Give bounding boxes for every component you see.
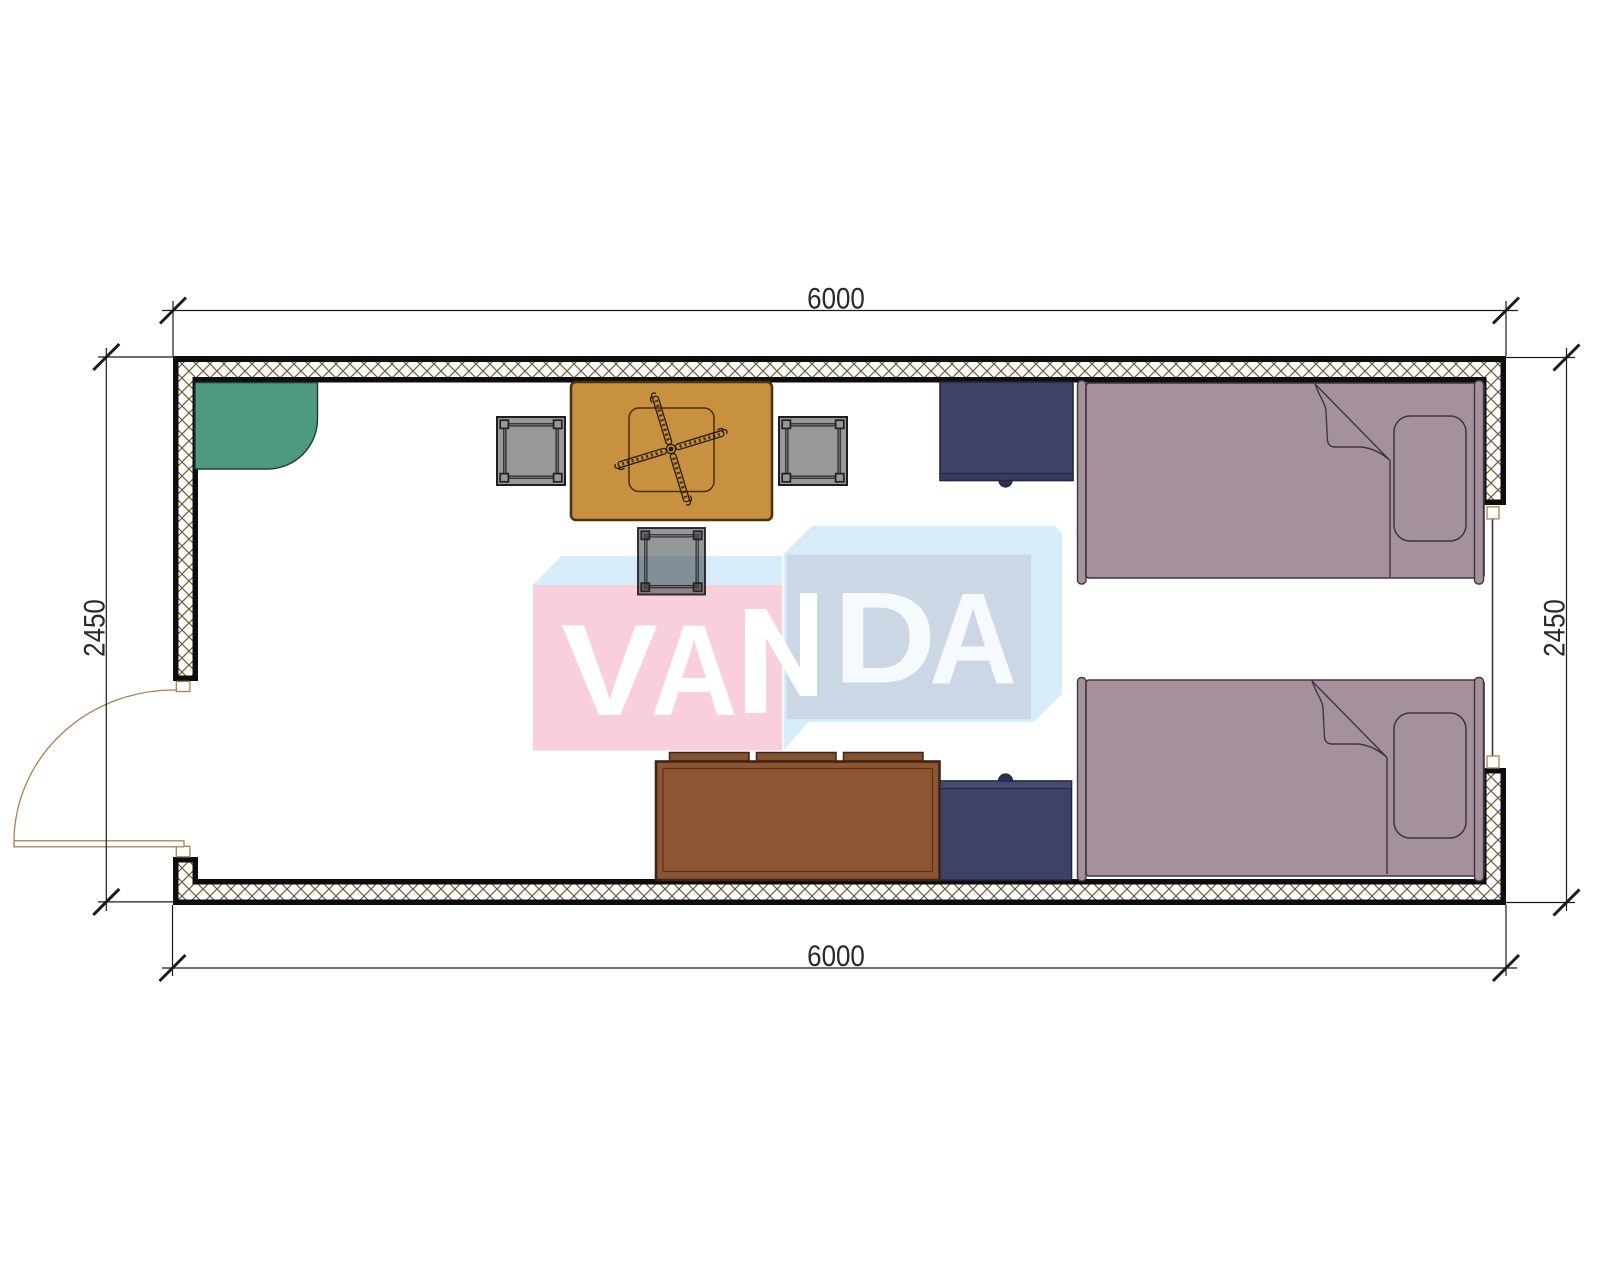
svg-text:6000: 6000	[807, 282, 865, 315]
svg-text:A: A	[929, 566, 1017, 711]
svg-text:6000: 6000	[807, 939, 865, 972]
svg-text:2450: 2450	[78, 599, 111, 657]
svg-text:D: D	[833, 565, 936, 711]
svg-text:A: A	[651, 597, 738, 743]
svg-text:V: V	[561, 598, 658, 743]
svg-text:2450: 2450	[1538, 599, 1571, 657]
